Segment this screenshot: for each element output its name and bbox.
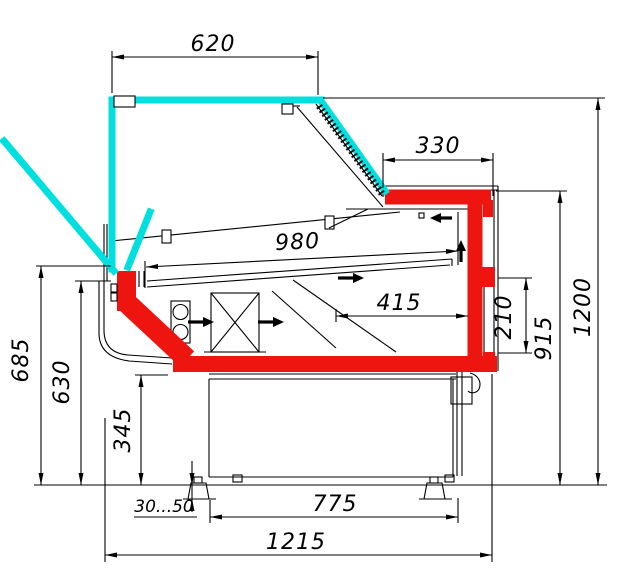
canopy-bracket xyxy=(114,96,135,107)
drain-pipe xyxy=(468,373,480,393)
airflow-arrows xyxy=(188,213,466,327)
dim-front-glass-height-label: 685 xyxy=(9,338,34,383)
dim-canopy-width-label: 620 xyxy=(191,32,236,57)
evaporator xyxy=(204,293,266,352)
canopy-lamp xyxy=(282,104,293,114)
shelf xyxy=(111,212,400,241)
shelf-clip xyxy=(325,216,334,229)
dim-overall-height-label: 1200 xyxy=(571,277,596,337)
cabinet-structure xyxy=(99,104,498,499)
dim-rear-opening-height-label: 210 xyxy=(492,295,517,340)
glass-panels xyxy=(4,100,385,271)
dim-rear-counter-depth-label: 330 xyxy=(416,134,461,159)
dim-leg-adjust-label: 30...50 xyxy=(134,497,193,517)
base-cabinet xyxy=(209,371,480,482)
dim-duct-depth-label: 415 xyxy=(377,291,422,316)
drawing-canvas: 620 330 980 415 210 915 xyxy=(0,0,628,575)
dim-counter-height-label: 915 xyxy=(532,316,557,361)
dim-base-width-label: 775 xyxy=(313,492,358,517)
dim-overall-depth-label: 1215 xyxy=(266,530,326,555)
dim-front-height-label: 630 xyxy=(50,360,75,405)
leveling-foot-rear xyxy=(424,477,445,499)
cross-section-diagram: 620 330 980 415 210 915 xyxy=(0,0,628,575)
dim-display-depth-label: 980 xyxy=(275,229,321,256)
front-glass-open-position xyxy=(4,141,114,271)
glass-hatch xyxy=(319,106,383,195)
shelf-clip xyxy=(162,230,171,243)
dim-base-height-label: 345 xyxy=(111,408,136,453)
display-deck xyxy=(147,259,452,281)
